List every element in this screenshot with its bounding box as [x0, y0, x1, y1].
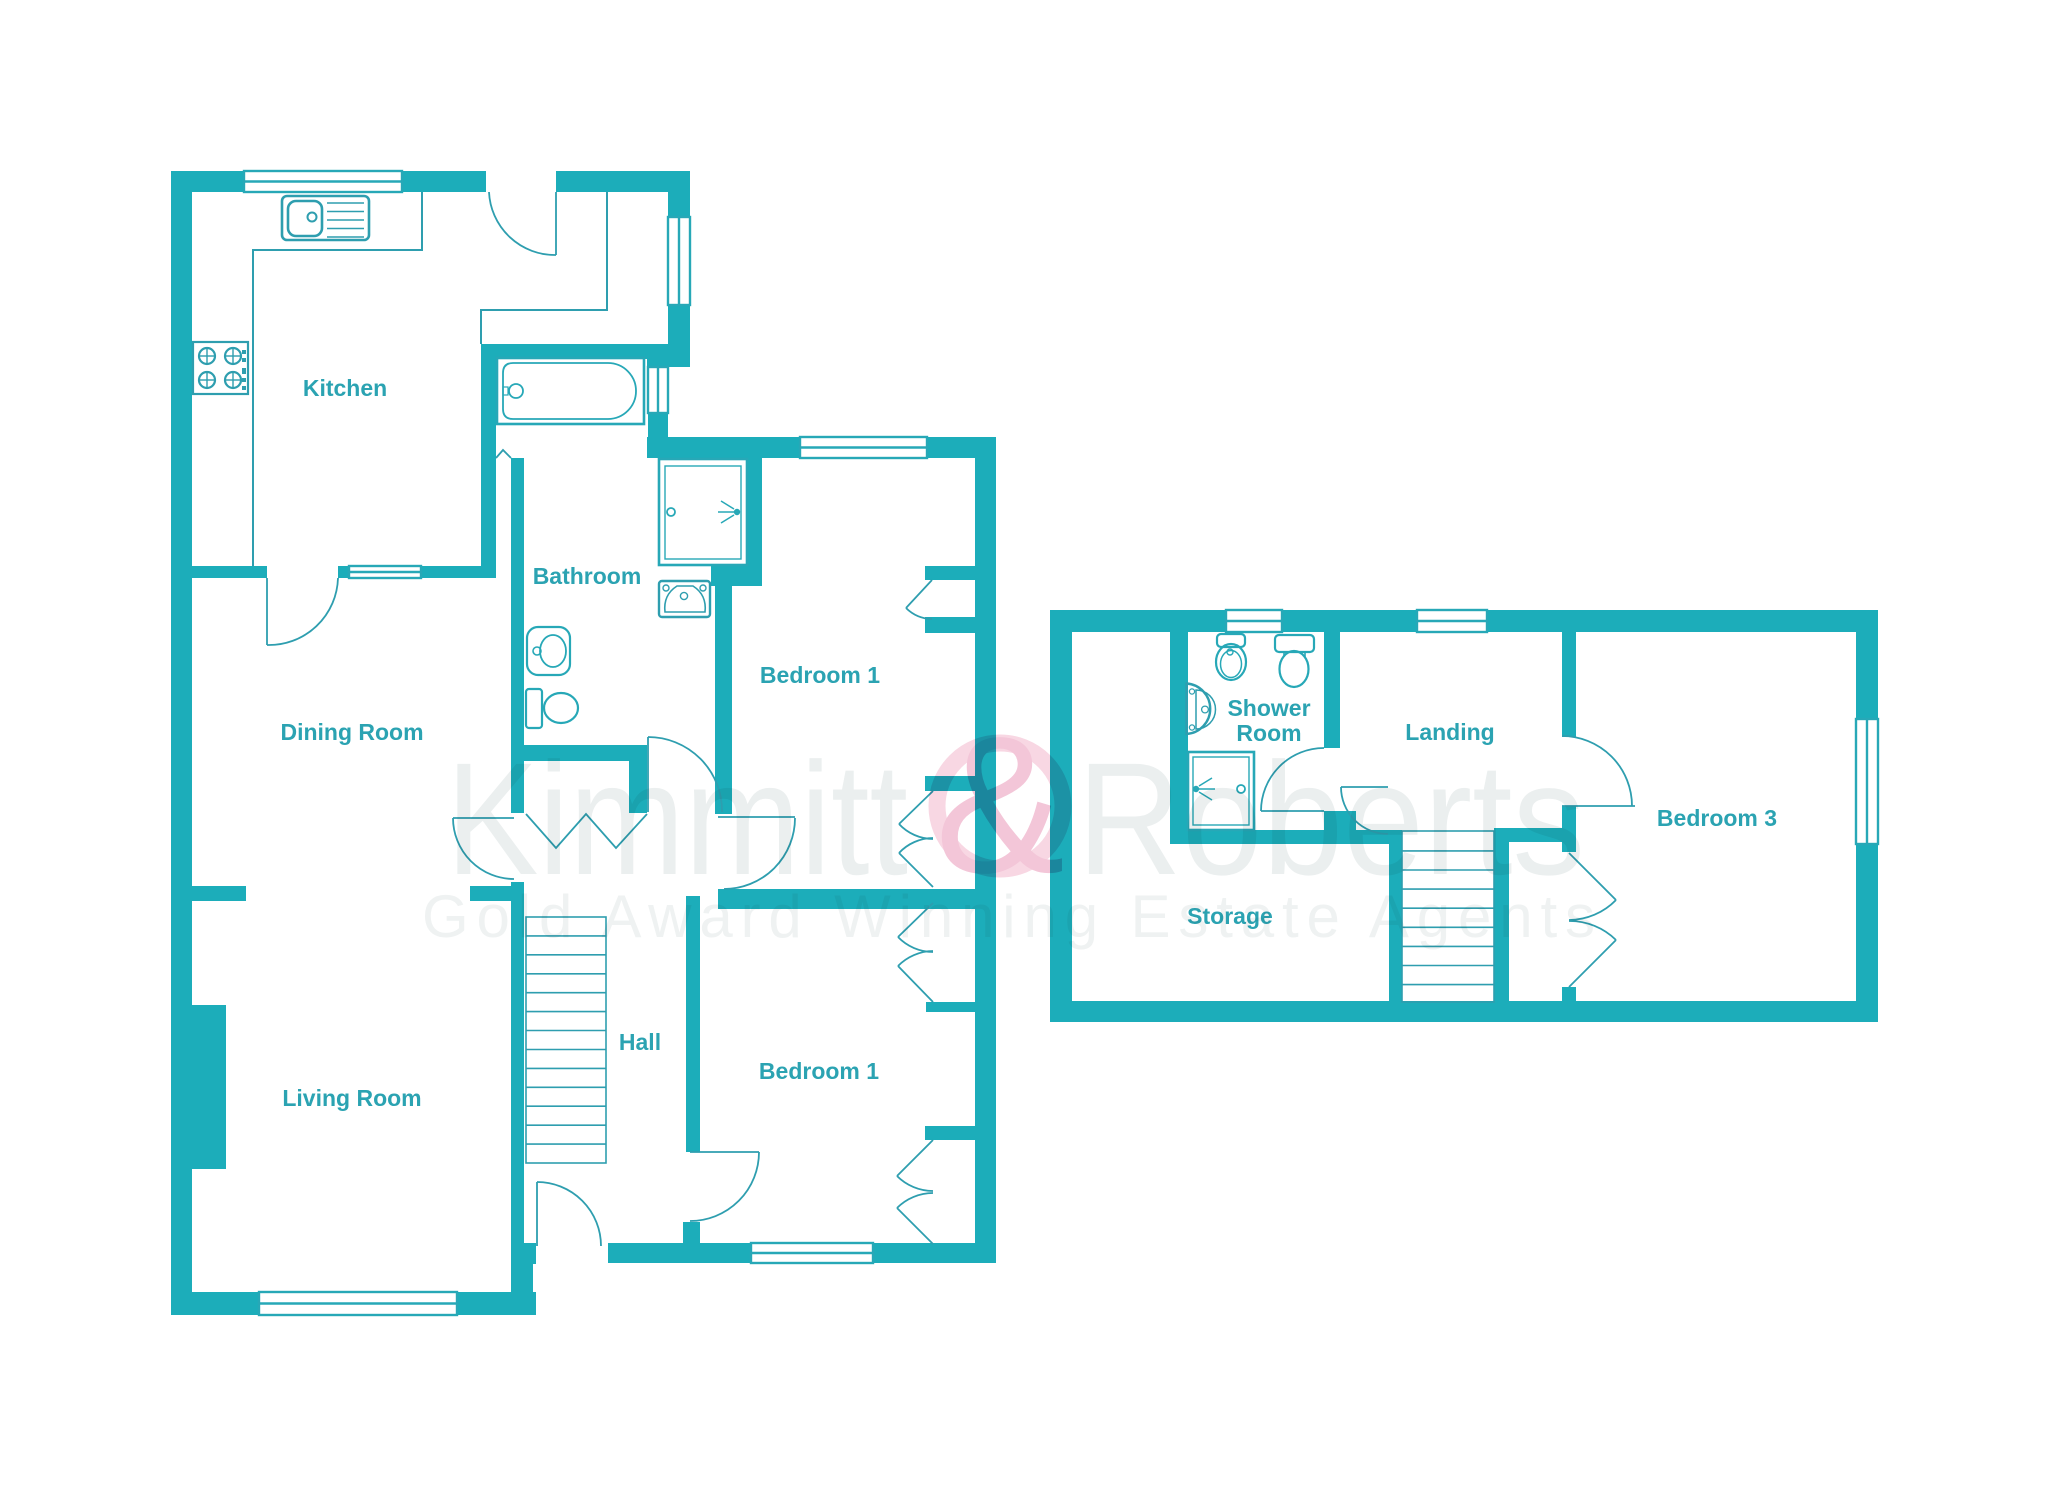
svg-text:Kitchen: Kitchen: [303, 375, 387, 401]
svg-text:Shower: Shower: [1227, 695, 1310, 721]
svg-text:Bedroom 1: Bedroom 1: [760, 662, 880, 688]
svg-text:Kimmitt: Kimmitt: [446, 729, 908, 908]
svg-text:Bedroom 3: Bedroom 3: [1657, 805, 1777, 831]
svg-text:Dining Room: Dining Room: [280, 719, 423, 745]
svg-text:Bathroom: Bathroom: [533, 563, 642, 589]
svg-text:Living Room: Living Room: [282, 1085, 421, 1111]
svg-text:Hall: Hall: [619, 1029, 661, 1055]
svg-text:&: &: [935, 696, 1065, 914]
svg-text:Bedroom 1: Bedroom 1: [759, 1058, 879, 1084]
svg-text:Roberts: Roberts: [1077, 729, 1585, 908]
